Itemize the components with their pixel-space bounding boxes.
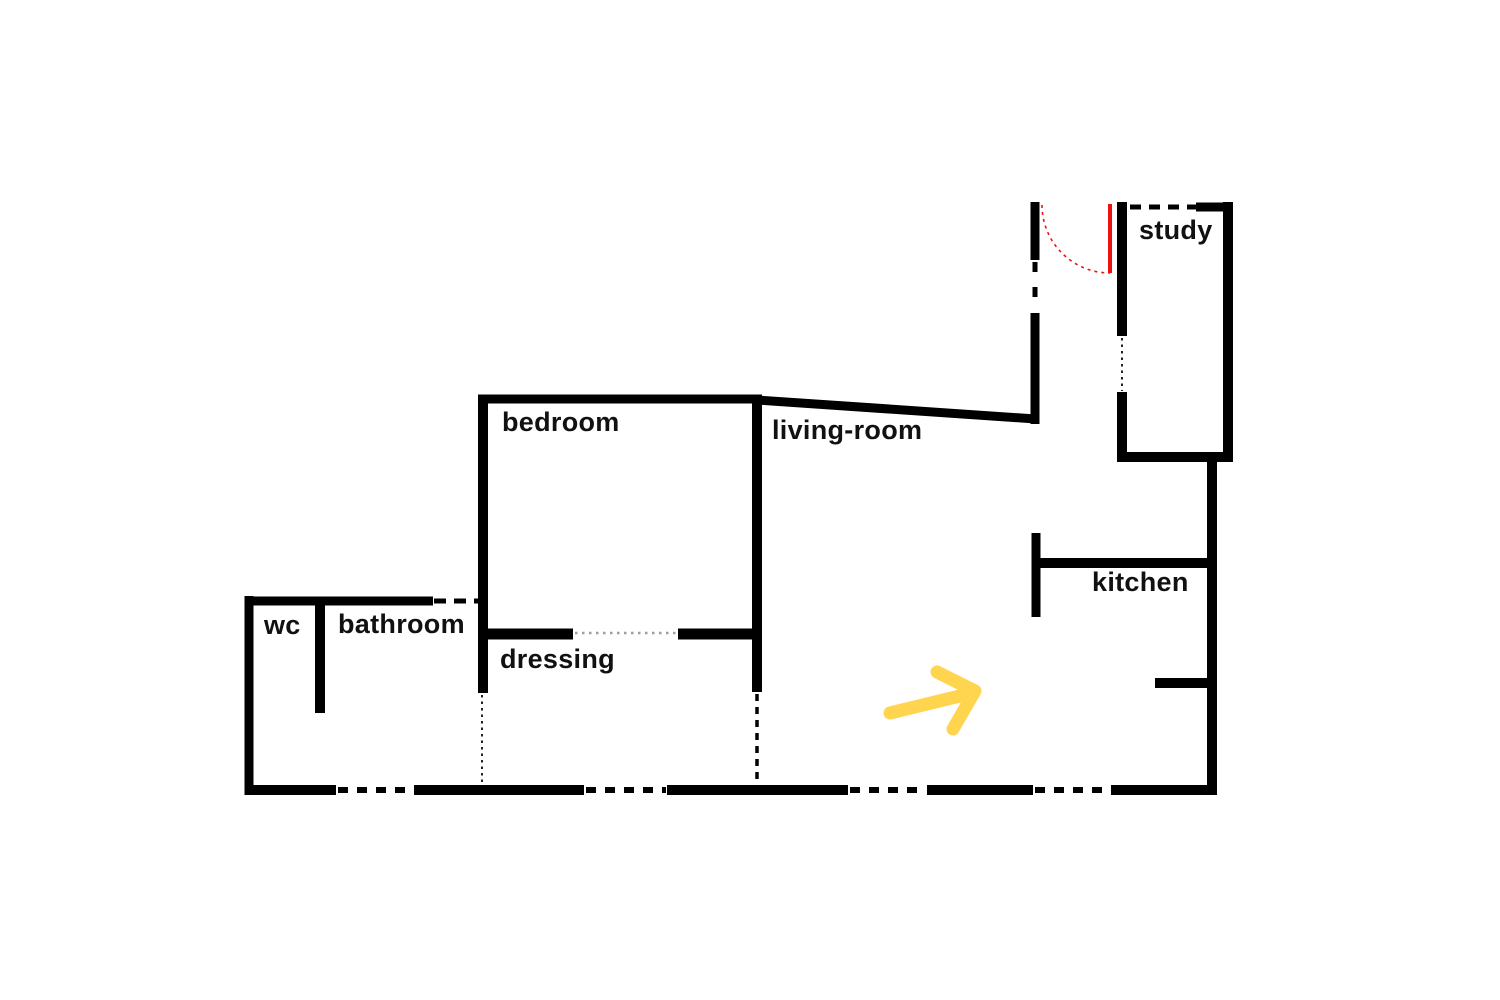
label-wc: wc bbox=[264, 611, 301, 641]
floor-plan-drawing bbox=[0, 0, 1500, 1000]
label-bedroom: bedroom bbox=[502, 408, 620, 438]
label-dressing: dressing bbox=[500, 645, 615, 675]
label-living-room: living-room bbox=[772, 416, 922, 446]
label-kitchen: kitchen bbox=[1092, 568, 1189, 598]
floor-plan-canvas: study bedroom living-room kitchen wc bat… bbox=[0, 0, 1500, 1000]
label-bathroom: bathroom bbox=[338, 610, 465, 640]
label-study: study bbox=[1139, 216, 1213, 246]
door-swing-arc bbox=[1042, 205, 1110, 273]
direction-arrow-shaft bbox=[890, 694, 968, 713]
